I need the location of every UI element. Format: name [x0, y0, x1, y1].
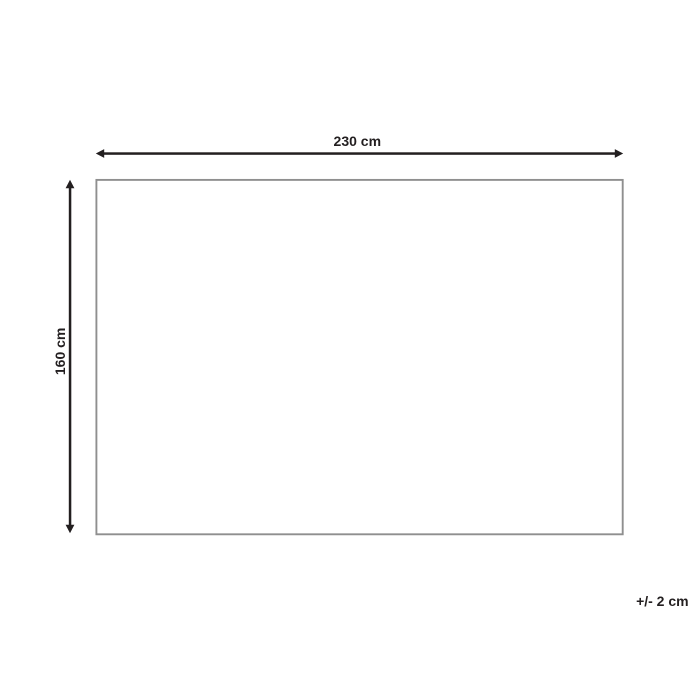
- svg-text:+/- 2 cm: +/- 2 cm: [636, 593, 689, 609]
- svg-text:230 cm: 230 cm: [334, 133, 381, 149]
- svg-text:160 cm: 160 cm: [52, 328, 68, 375]
